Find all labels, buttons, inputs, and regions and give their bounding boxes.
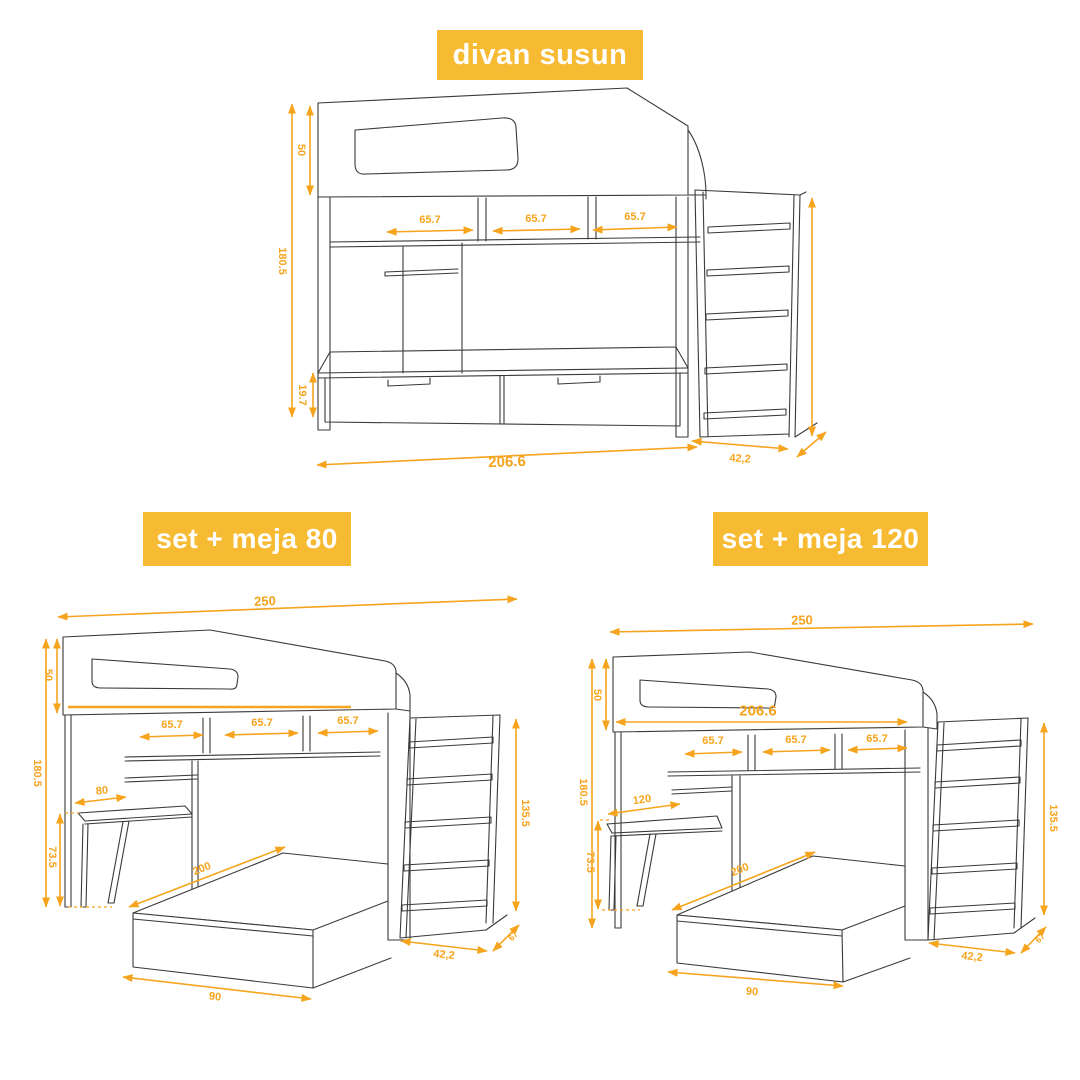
dim-bed-width: 90	[208, 990, 222, 1003]
dim-compartment-3: 65.7	[866, 733, 887, 745]
dim-compartment-2: 65.7	[251, 717, 272, 729]
set-meja-80-drawing	[35, 585, 555, 1015]
set-meja-120-drawing	[580, 610, 1070, 1015]
dim-headboard-height: 50	[295, 144, 307, 156]
dim-desk-height: 73.5	[584, 851, 596, 872]
dim-overall-length: 250	[254, 593, 276, 609]
dim-compartment-2: 65.7	[785, 734, 806, 746]
banner-divan-susun: divan susun	[437, 30, 643, 80]
divan-susun-drawing	[270, 85, 860, 480]
dim-compartment-1: 65.7	[419, 214, 440, 226]
dim-desk-width: 120	[632, 793, 652, 807]
product-dimension-sheet: divan susun set + meja 80 set + meja 120	[0, 0, 1080, 1080]
dim-total-height: 180.5	[31, 759, 43, 787]
dim-ladder-width: 42,2	[961, 950, 984, 964]
dim-ladder-width: 42,2	[729, 452, 751, 465]
banner-divan-susun-label: divan susun	[453, 39, 628, 72]
dim-bed-width: 90	[745, 985, 758, 998]
dim-headboard-height: 50	[42, 669, 54, 681]
dim-compartment-2: 65.7	[525, 213, 546, 225]
dim-ladder-height: 135.5	[519, 799, 531, 827]
dim-compartment-1: 65.7	[702, 735, 723, 747]
dim-ladder-width: 42,2	[433, 948, 456, 962]
dim-compartment-3: 65.7	[337, 715, 358, 727]
figure-divan-susun: 50 180.5 19.7 65.7 65.7 65.7 206.6 42,2	[270, 85, 860, 480]
dim-compartment-1: 65.7	[161, 719, 182, 731]
dim-ladder-height: 135.5	[1047, 804, 1059, 832]
banner-set-meja-80: set + meja 80	[143, 512, 351, 566]
bunk-bed-lineart	[318, 88, 817, 437]
dim-desk-height: 73.5	[46, 846, 58, 867]
banner-set-meja-80-label: set + meja 80	[156, 523, 338, 555]
figure-set-meja-120: 250 206.6 50 180.5 65.7 65.7 65.7 120 73…	[580, 610, 1070, 1015]
dim-bunk-width: 206.6	[739, 703, 777, 720]
dim-desk-width: 80	[95, 784, 109, 797]
banner-set-meja-120-label: set + meja 120	[722, 523, 920, 555]
dim-total-height: 180.5	[276, 247, 288, 275]
figure-set-meja-80: 250 50 180.5 65.7 65.7 65.7 80 73.5 200 …	[35, 585, 555, 1015]
dim-compartment-3: 65.7	[624, 211, 645, 223]
dim-total-height: 180.5	[577, 778, 589, 806]
dim-drawer-height: 19.7	[296, 384, 308, 405]
banner-set-meja-120: set + meja 120	[713, 512, 928, 566]
dim-overall-length: 250	[791, 612, 813, 627]
loft-set-lineart	[63, 630, 507, 988]
dim-headboard-height: 50	[591, 689, 603, 701]
loft-set-lineart	[607, 652, 1035, 982]
dim-overall-width: 206.6	[488, 453, 526, 471]
